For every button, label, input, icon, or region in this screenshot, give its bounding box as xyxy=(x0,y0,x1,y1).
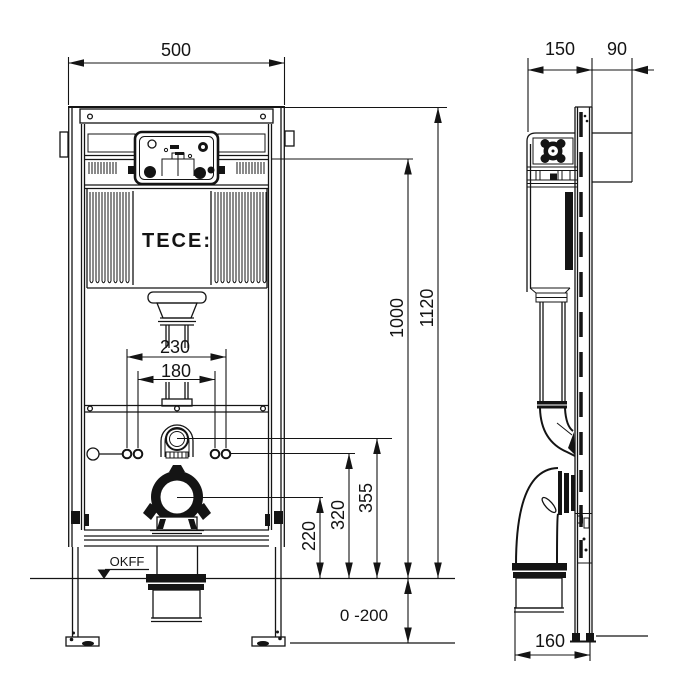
flush-pipe-side xyxy=(537,302,575,456)
dim-220: 220 xyxy=(299,498,320,579)
tece-logo: TECE: xyxy=(142,230,212,252)
front-dimensions: 500 230 180 1120 1000 355 xyxy=(69,40,448,643)
drawing-canvas: TECE: xyxy=(0,0,700,700)
dim-0-200: 0 -200 xyxy=(340,579,408,644)
svg-text:90: 90 xyxy=(607,39,627,59)
cistern-ribs-left xyxy=(90,192,129,283)
flush-plate-window xyxy=(135,132,218,184)
side-view: 150 90 160 xyxy=(512,39,654,661)
cistern-side xyxy=(527,133,578,302)
fixing-holes-row xyxy=(87,448,230,460)
front-view: TECE: xyxy=(30,107,455,646)
svg-text:220: 220 xyxy=(299,521,319,551)
wall-rail xyxy=(570,107,648,642)
technical-drawing: TECE: xyxy=(0,0,700,700)
left-bracket-tab xyxy=(60,132,68,157)
wall-bracket-box xyxy=(592,133,632,182)
svg-text:1120: 1120 xyxy=(417,289,437,328)
level-triangle-icon xyxy=(98,570,111,580)
elbow-clip xyxy=(540,496,558,515)
right-bracket-tab xyxy=(285,131,294,146)
floor-level-marker: OKFF xyxy=(98,554,150,579)
okff-label: OKFF xyxy=(110,554,145,569)
svg-text:150: 150 xyxy=(545,39,575,59)
dim-90: 90 xyxy=(592,39,654,74)
cistern: TECE: xyxy=(84,185,269,288)
dim-150: 150 xyxy=(528,39,592,70)
dim-180: 180 xyxy=(138,361,215,448)
dim-320: 320 xyxy=(328,454,349,579)
dim-500: 500 xyxy=(69,40,285,105)
water-supply-connection xyxy=(161,425,193,458)
dim-1120: 1120 xyxy=(417,108,438,579)
svg-text:160: 160 xyxy=(535,631,565,651)
drain-elbow-side xyxy=(512,468,575,612)
drain-connection xyxy=(143,465,211,534)
cistern-ribs-right xyxy=(215,192,266,283)
svg-text:500: 500 xyxy=(161,40,191,60)
svg-text:355: 355 xyxy=(356,483,376,513)
svg-text:1000: 1000 xyxy=(387,298,407,338)
dim-355: 355 xyxy=(356,439,377,579)
waste-pipe xyxy=(146,546,206,622)
svg-text:320: 320 xyxy=(328,500,348,530)
svg-text:180: 180 xyxy=(161,361,191,381)
dim-1000: 1000 xyxy=(387,159,408,578)
svg-text:230: 230 xyxy=(160,337,190,357)
fill-valve xyxy=(541,139,566,163)
middle-rail xyxy=(84,406,269,413)
svg-text:0 -200: 0 -200 xyxy=(340,606,388,625)
